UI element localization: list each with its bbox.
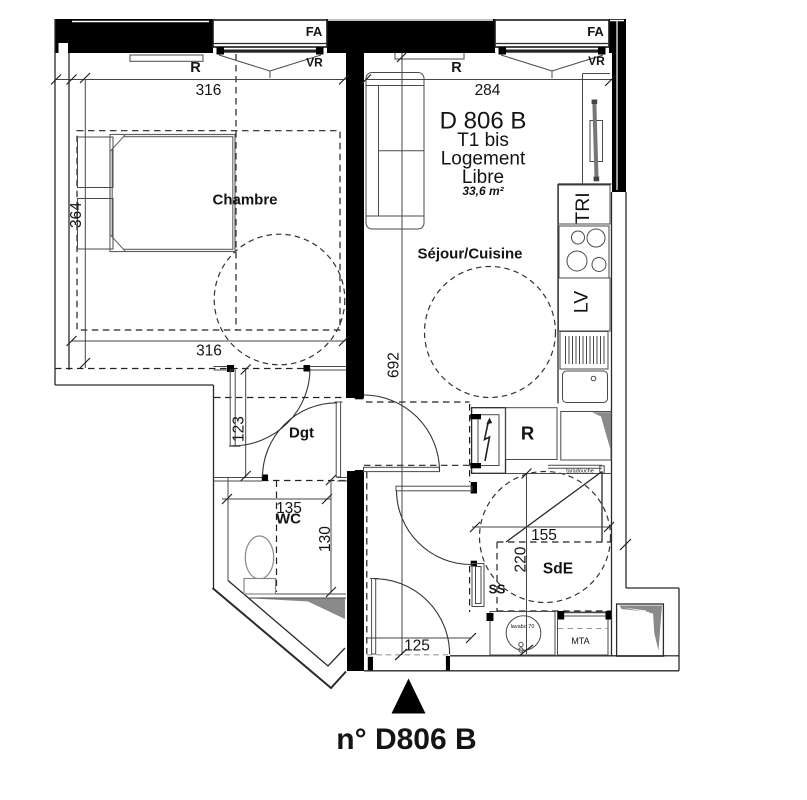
svg-text:VR: VR: [588, 54, 605, 68]
svg-text:SdE: SdE: [543, 561, 573, 578]
svg-text:n° D806 B: n° D806 B: [336, 723, 476, 756]
svg-text:lavabo 70: lavabo 70: [511, 624, 535, 630]
svg-text:R: R: [521, 423, 534, 444]
svg-text:284: 284: [475, 82, 501, 99]
svg-text:316: 316: [196, 343, 222, 360]
svg-text:WC: WC: [276, 511, 301, 528]
svg-text:220: 220: [513, 546, 530, 572]
svg-text:R: R: [451, 60, 462, 76]
svg-text:316: 316: [196, 82, 222, 99]
svg-text:692: 692: [386, 352, 403, 378]
svg-text:FA: FA: [587, 24, 604, 39]
svg-text:33,6 m²: 33,6 m²: [462, 184, 504, 198]
svg-text:R: R: [190, 60, 201, 76]
svg-text:TRI: TRI: [572, 192, 594, 223]
svg-text:Dgt: Dgt: [289, 425, 314, 442]
svg-text:364: 364: [68, 202, 85, 228]
svg-text:MTA: MTA: [571, 636, 589, 646]
svg-text:125: 125: [404, 638, 430, 655]
svg-text:FA: FA: [306, 24, 323, 39]
svg-text:SS: SS: [489, 583, 506, 597]
svg-text:Séjour/Cuisine: Séjour/Cuisine: [417, 246, 522, 263]
svg-text:VR: VR: [306, 56, 323, 70]
svg-text:Chambre: Chambre: [212, 192, 277, 209]
svg-text:130: 130: [317, 526, 334, 552]
svg-text:123: 123: [231, 416, 248, 442]
svg-text:155: 155: [531, 527, 557, 544]
svg-text:LV: LV: [571, 291, 593, 313]
